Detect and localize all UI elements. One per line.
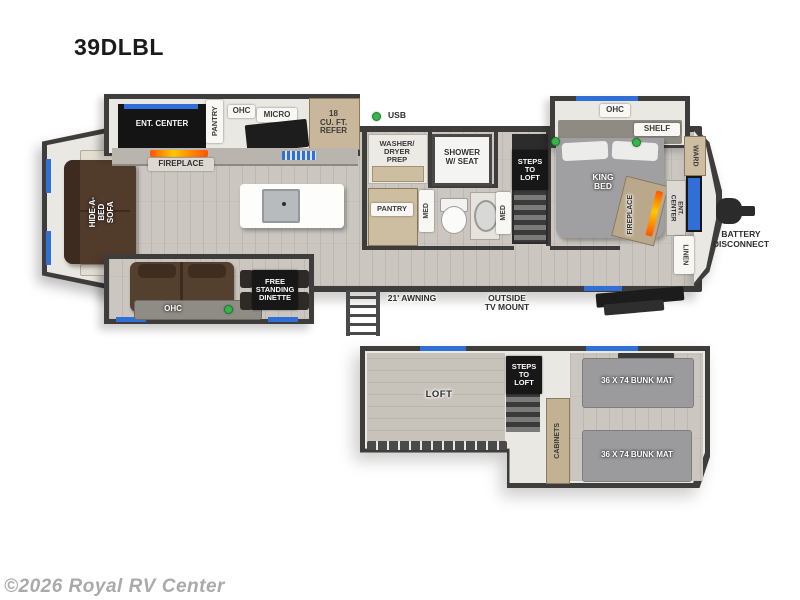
hide-a-bed-sofa-label-text: HIDE-A-BED SOFA bbox=[89, 190, 115, 234]
front-ent-center: ENT. CENTER bbox=[666, 180, 686, 236]
loft-cabinets: CABINETS bbox=[546, 398, 570, 484]
entry-window bbox=[584, 286, 622, 291]
hide-a-bed-sofa-label: HIDE-A-BED SOFA bbox=[80, 168, 124, 256]
kitchen-island bbox=[240, 184, 344, 228]
loft-floorplan: LOFT STEPS TO LOFT CABINETS 36 X 74 BUNK… bbox=[360, 346, 710, 488]
console-led bbox=[224, 305, 233, 314]
vanity-sink bbox=[474, 200, 498, 232]
dish-rack bbox=[282, 151, 316, 160]
bedroom-fireplace-label-text: FIREPLACE bbox=[627, 195, 635, 235]
rear-window-bottom bbox=[46, 231, 51, 265]
ward-label-text: WARD bbox=[691, 145, 699, 166]
bedroom-ohc-label: OHC bbox=[600, 104, 630, 117]
usb-led-dot bbox=[372, 112, 381, 121]
toilet-bowl bbox=[441, 206, 467, 234]
shower-label: SHOWER W/ SEAT bbox=[436, 146, 488, 170]
exterior-ladder bbox=[346, 290, 380, 336]
island-sink bbox=[262, 189, 300, 223]
bath-wall-left bbox=[362, 132, 367, 248]
dinette-table: FREE STANDING DINETTE bbox=[252, 270, 298, 310]
bunk-mat-bottom-label: 36 X 74 BUNK MAT bbox=[586, 448, 688, 462]
bath-wall-mid2 bbox=[494, 132, 498, 188]
med-right-label-text: MED bbox=[500, 205, 508, 221]
loft-railing bbox=[367, 441, 507, 450]
bedroom-slide-window bbox=[576, 96, 638, 101]
loft-steps-label: STEPS TO LOFT bbox=[506, 356, 542, 394]
slide-window-right bbox=[268, 317, 298, 322]
med-right-label: MED bbox=[496, 192, 511, 234]
linen-label-text: LINEN bbox=[680, 245, 688, 266]
island-faucet bbox=[282, 202, 286, 206]
floorplan-canvas: 39DLBL BATTERY DISCONNECT HIDE-A-BED SOF… bbox=[0, 0, 800, 600]
bedroom-tv bbox=[686, 176, 702, 232]
rear-fireplace-flame bbox=[150, 150, 208, 157]
rear-ent-center-label: ENT. CENTER bbox=[118, 114, 206, 134]
hitch-pin bbox=[716, 198, 742, 224]
bath-wall-bottom bbox=[362, 246, 514, 250]
bedroom-fireplace-label: FIREPLACE bbox=[622, 188, 640, 242]
med-left-label-text: MED bbox=[423, 203, 431, 219]
refer-label: 18 CU. FT. REFER bbox=[310, 102, 357, 144]
rear-tv bbox=[124, 104, 198, 109]
front-ent-center-label-text: ENT. CENTER bbox=[669, 195, 683, 222]
headrest-right bbox=[188, 264, 226, 278]
tv-mount-label: OUTSIDE TV MOUNT bbox=[476, 292, 538, 314]
washer-dryer-cabinet bbox=[372, 166, 424, 182]
loft-label: LOFT bbox=[414, 388, 464, 403]
washer-dryer-label: WASHER/ DRYER PREP bbox=[370, 136, 424, 168]
hitch-arm bbox=[740, 206, 755, 216]
watermark: ©2026 Royal RV Center bbox=[4, 576, 225, 598]
kitchen-pantry-label: PANTRY bbox=[206, 100, 223, 143]
king-bed-label: KING BED bbox=[578, 168, 628, 196]
bunk-mat-top-label: 36 X 74 BUNK MAT bbox=[586, 374, 688, 388]
loft-window-left bbox=[420, 346, 466, 351]
med-left-label: MED bbox=[419, 190, 434, 232]
page-title: 39DLBL bbox=[74, 34, 164, 61]
loft-steps-treads bbox=[506, 392, 540, 432]
sofa-back bbox=[64, 160, 80, 264]
awning-label: 21' AWNING bbox=[378, 292, 446, 305]
bedroom-led-left bbox=[551, 137, 560, 146]
sofa-ohc-label: OHC bbox=[158, 303, 188, 315]
bedroom-wall-bottom bbox=[550, 246, 620, 250]
rear-window-top bbox=[46, 159, 51, 193]
headrest-left bbox=[138, 264, 176, 278]
bath-pantry-cabinet bbox=[368, 188, 418, 246]
linen-cabinet: LINEN bbox=[674, 236, 694, 274]
main-steps-treads bbox=[514, 190, 546, 242]
bath-pantry-label: PANTRY bbox=[371, 203, 413, 216]
main-steps-label: STEPS TO LOFT bbox=[512, 150, 548, 190]
battery-disconnect-label: BATTERY DISCONNECT bbox=[702, 229, 780, 250]
loft-window-right bbox=[586, 346, 638, 351]
loft-cabinets-label-text: CABINETS bbox=[554, 423, 562, 459]
shelf-label: SHELF bbox=[634, 123, 680, 136]
kitchen-pantry-label-text: PANTRY bbox=[210, 107, 218, 137]
rear-fireplace-label: FIREPLACE bbox=[148, 158, 214, 171]
pillow-left bbox=[562, 141, 609, 161]
kitchen-ohc-label: OHC bbox=[228, 105, 255, 118]
ward-cabinet: WARD bbox=[684, 136, 706, 176]
bedroom-led-right bbox=[632, 138, 641, 147]
usb-label: USB bbox=[384, 110, 410, 122]
